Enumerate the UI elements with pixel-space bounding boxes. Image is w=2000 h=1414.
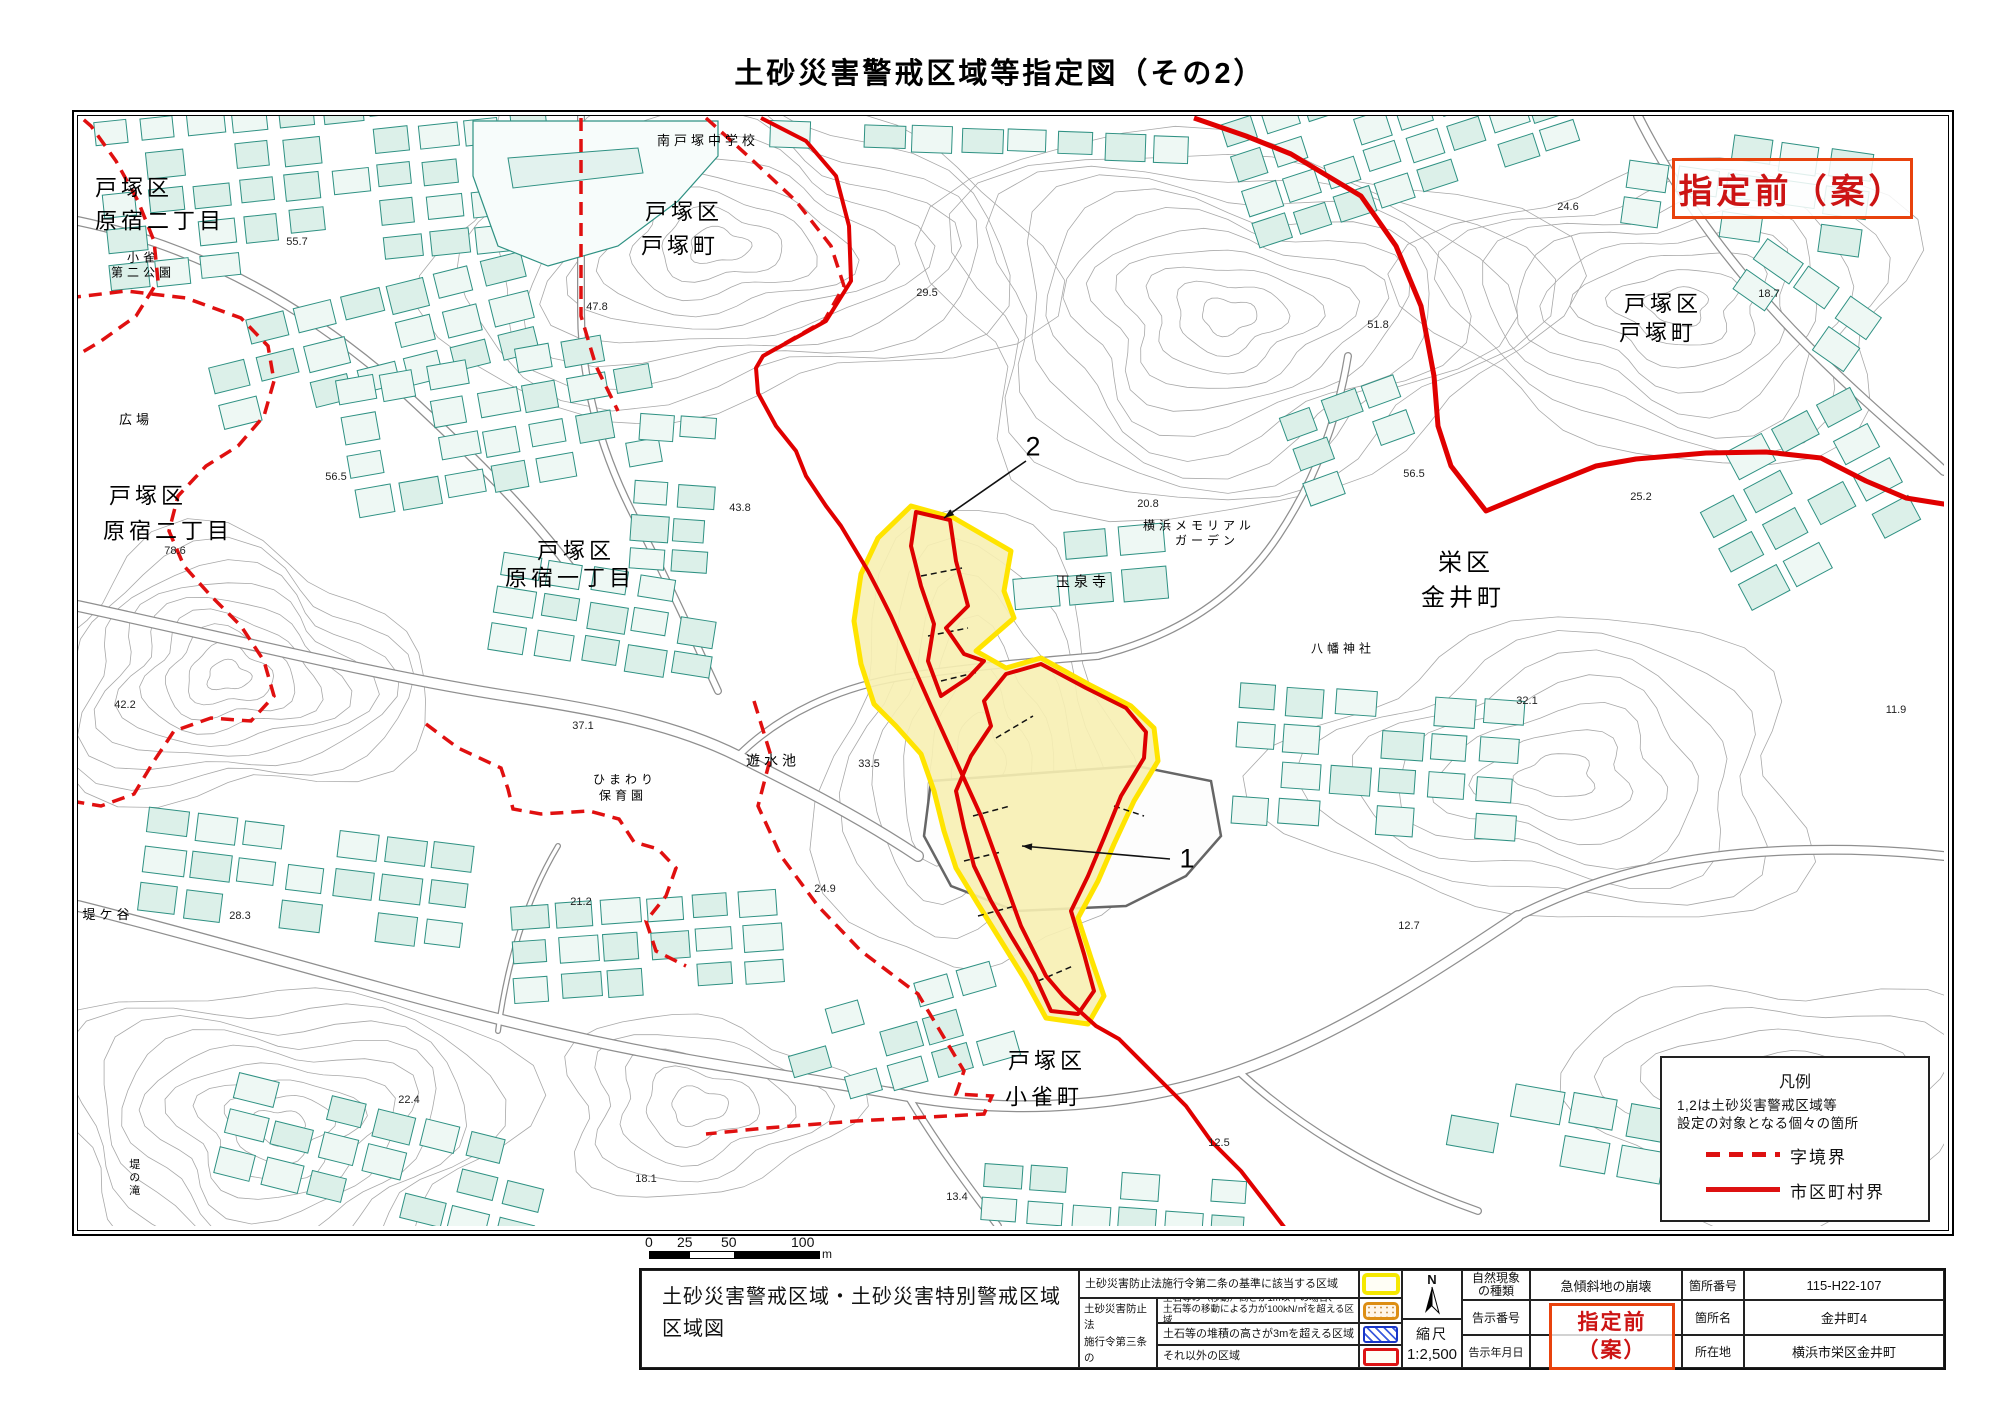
place-label: 第二公園: [111, 267, 175, 280]
place-label: ひまわり: [593, 774, 657, 787]
elevation-label: 42.2: [114, 700, 135, 712]
elevation-label: 12.5: [1208, 1138, 1229, 1150]
info-table: 土砂災害警戒区域・土砂災害特別警戒区域 区域図 土砂災害防止法施行令第二条の基準…: [639, 1268, 1946, 1370]
place-label: 戸塚区: [645, 200, 723, 223]
place-label: 堤ケ谷: [82, 908, 133, 922]
place-label: 小雀町: [1005, 1085, 1083, 1108]
place-label: ガーデン: [1175, 535, 1239, 548]
elevation-label: 20.8: [1137, 499, 1158, 511]
red-outline-swatch: [1363, 1348, 1399, 1366]
map-title-line1: 土砂災害警戒区域・土砂災害特別警戒区域: [662, 1281, 1078, 1313]
scale-bar: 0 25 50 100 m: [645, 1234, 845, 1264]
elevation-label: 47.8: [586, 302, 607, 314]
blue-hatched-swatch: [1363, 1326, 1398, 1343]
legend-item-municipal-boundary: 市区町村界: [1790, 1178, 1885, 1203]
elevation-label: 55.7: [286, 237, 307, 249]
elevation-label: 22.4: [398, 1095, 419, 1107]
location-value-cell: 横浜市栄区金井町: [1744, 1335, 1944, 1368]
north-arrow-icon: [1421, 1286, 1443, 1316]
place-label: 遊水池: [746, 754, 800, 769]
place-label: 戸塚区: [95, 176, 173, 199]
elevation-label: 21.2: [570, 897, 591, 909]
map-legend-panel: 凡例 1,2は土砂災害警戒区域等 設定の対象となる個々の箇所 字境界 市区町村界: [1660, 1056, 1930, 1222]
scale-unit: m: [822, 1247, 832, 1261]
place-label: 戸塚町: [1619, 321, 1697, 344]
basho-name-label-cell: 箇所名: [1682, 1300, 1744, 1335]
elevation-label: 32.1: [1516, 696, 1537, 708]
place-label: 金井町: [1421, 585, 1505, 610]
place-label: 戸塚町: [641, 234, 719, 257]
place-label: 原宿二丁目: [95, 209, 225, 232]
scale-tick-100: 100: [791, 1234, 814, 1250]
yellow-zone-swatch: [1362, 1273, 1400, 1295]
elevation-label: 56.5: [1403, 469, 1424, 481]
legend-solid-line-sample: [1706, 1187, 1780, 1192]
zone-number-label: 1: [1179, 844, 1194, 875]
place-label: 戸塚区: [537, 539, 615, 562]
zone-row-pile-label: 土石等の堆積の高さが3mを超える区域: [1157, 1323, 1359, 1345]
kokuji-no-label-cell: 告示番号: [1462, 1300, 1530, 1335]
legend-item-aza-boundary: 字境界: [1790, 1143, 1847, 1168]
scale-tick-0: 0: [645, 1234, 653, 1250]
map-title-line2: 区域図: [662, 1313, 1078, 1345]
elevation-label: 43.8: [729, 503, 750, 515]
place-label: 戸塚区: [109, 484, 187, 507]
elevation-label: 24.6: [1557, 202, 1578, 214]
page-title: 土砂災害警戒区域等指定図（その2）: [0, 50, 2000, 92]
map-frame: 戸塚区原宿二丁目小雀第二公園55.7南戸塚中学校戸塚区戸塚町47.829.524…: [72, 110, 1954, 1236]
elevation-label: 18.1: [635, 1174, 656, 1186]
place-label: 戸塚区: [1624, 292, 1702, 315]
zone-row-article2-label: 土砂災害防止法施行令第二条の基準に該当する区域: [1079, 1270, 1359, 1298]
elevation-label: 25.2: [1630, 492, 1651, 504]
place-label: 保育園: [599, 790, 647, 803]
elevation-label: 56.5: [325, 472, 346, 484]
place-label: 栄区: [1438, 550, 1494, 575]
kokuji-date-label-cell: 告示年月日: [1462, 1335, 1530, 1368]
elevation-label: 13.4: [946, 1192, 967, 1204]
place-label: 南戸塚中学校: [657, 134, 759, 148]
place-label: 玉泉寺: [1056, 575, 1110, 590]
map-sheet: 土砂災害警戒区域等指定図（その2） 戸塚区原宿二丁目小雀第二公園55.7南戸塚中…: [0, 0, 2000, 1414]
place-label: 原宿二丁目: [103, 519, 233, 542]
zone-symbol-other: [1359, 1345, 1402, 1368]
elevation-label: 51.8: [1367, 320, 1388, 332]
scale-cell: 縮尺 1:2,500: [1402, 1319, 1462, 1368]
pre-designation-stamp: 指定前（案）: [1672, 158, 1913, 219]
place-label: 八幡神社: [1311, 643, 1375, 656]
elevation-label: 28.3: [229, 911, 250, 923]
place-label: 原宿一丁目: [505, 566, 635, 589]
nature-label-cell: 自然現象 の種類: [1462, 1270, 1530, 1300]
place-label: 小雀: [127, 252, 159, 265]
legend-title: 凡例: [1662, 1068, 1928, 1092]
scale-tick-50: 50: [721, 1234, 737, 1250]
scale-word: 縮尺: [1416, 1324, 1448, 1344]
zone-group-article3-label: 土砂災害防止法 施行令第三条の 基準に該当する 区域: [1079, 1298, 1157, 1368]
place-label: 戸塚区: [1008, 1049, 1086, 1072]
map-title-cell: 土砂災害警戒区域・土砂災害特別警戒区域 区域図: [641, 1270, 1079, 1368]
north-letter: N: [1427, 1273, 1436, 1286]
basho-no-value-cell: 115-H22-107: [1744, 1270, 1944, 1300]
compass-cell: N: [1402, 1270, 1462, 1319]
elevation-label: 29.5: [916, 288, 937, 300]
location-label-cell: 所在地: [1682, 1335, 1744, 1368]
legend-note-line1: 1,2は土砂災害警戒区域等: [1677, 1094, 1837, 1114]
nature-value-cell: 急傾斜地の崩壊: [1530, 1270, 1682, 1300]
elevation-label: 12.7: [1398, 921, 1419, 933]
scale-value: 1:2,500: [1407, 1346, 1457, 1363]
place-label: 堤の滝: [127, 1159, 139, 1198]
place-label: 横浜メモリアル: [1143, 520, 1255, 533]
zone-number-label: 2: [1025, 432, 1040, 463]
zone-symbol-move: [1359, 1298, 1402, 1323]
elevation-label: 37.1: [572, 721, 593, 733]
elevation-label: 78.6: [164, 546, 185, 558]
elevation-label: 24.9: [814, 884, 835, 896]
legend-dashed-line-sample: [1706, 1152, 1780, 1157]
map-area: 戸塚区原宿二丁目小雀第二公園55.7南戸塚中学校戸塚区戸塚町47.829.524…: [77, 115, 1949, 1231]
elevation-label: 18.7: [1758, 289, 1779, 301]
elevation-label: 33.5: [858, 759, 879, 771]
zone-symbol-pile: [1359, 1323, 1402, 1345]
zone-row-move-label: 土石等の（移動）高さが1m以下の場合、 土石等の移動による力が100kN/㎡を超…: [1157, 1298, 1359, 1323]
pre-designation-stamp-small: 指定前 （案）: [1549, 1303, 1675, 1370]
basho-name-value-cell: 金井町4: [1744, 1300, 1944, 1335]
orange-dotted-swatch: [1363, 1302, 1399, 1320]
scale-bar-rule: [649, 1251, 820, 1259]
legend-note-line2: 設定の対象となる個々の箇所: [1677, 1112, 1859, 1132]
place-label: 広場: [119, 413, 153, 427]
basho-no-label-cell: 箇所番号: [1682, 1270, 1744, 1300]
zone-row-other-label: それ以外の区域: [1157, 1345, 1359, 1368]
zone-symbol-warning: [1359, 1270, 1402, 1298]
scale-tick-25: 25: [677, 1234, 693, 1250]
elevation-label: 11.9: [1886, 705, 1907, 717]
